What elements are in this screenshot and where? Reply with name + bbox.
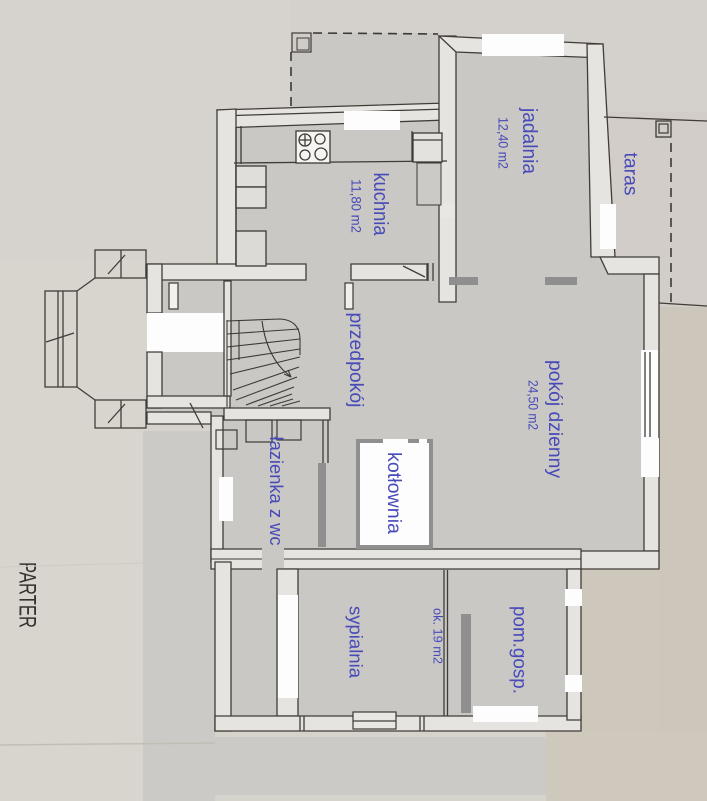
svg-text:ok. 19 m2: ok. 19 m2 bbox=[431, 608, 446, 664]
svg-text:przedpokój: przedpokój bbox=[345, 313, 367, 408]
svg-text:jadalnia: jadalnia bbox=[518, 107, 540, 175]
svg-text:11,80 m2: 11,80 m2 bbox=[349, 179, 364, 233]
svg-text:pokój dzienny: pokój dzienny bbox=[544, 360, 566, 478]
svg-text:kotłownia: kotłownia bbox=[383, 452, 405, 534]
svg-text:kuchnia: kuchnia bbox=[369, 173, 391, 237]
svg-text:12,40 m2: 12,40 m2 bbox=[496, 117, 511, 169]
svg-text:taras: taras bbox=[620, 153, 641, 196]
svg-text:sypialnia: sypialnia bbox=[346, 606, 367, 679]
svg-text:24,50 m2: 24,50 m2 bbox=[526, 380, 541, 430]
svg-text:PARTER: PARTER bbox=[14, 562, 41, 628]
svg-text:pom.gosp.: pom.gosp. bbox=[509, 606, 530, 694]
svg-text:łazienka z wc: łazienka z wc bbox=[266, 437, 286, 546]
